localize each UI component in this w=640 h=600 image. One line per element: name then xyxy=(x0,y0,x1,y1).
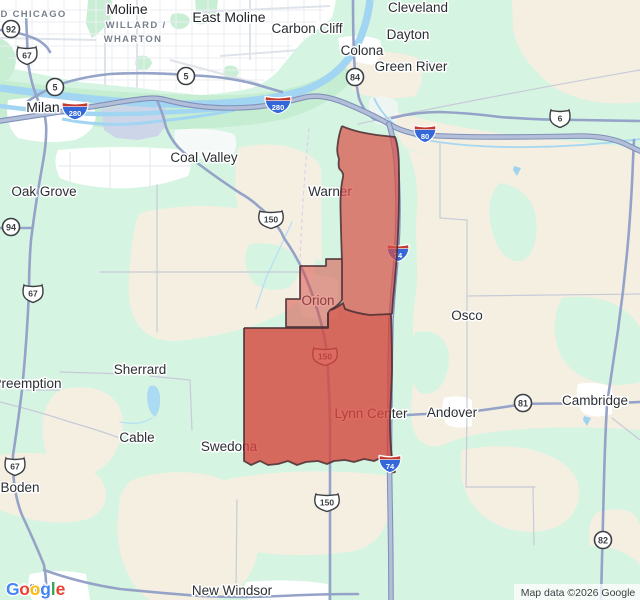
svg-text:Cleveland: Cleveland xyxy=(388,0,448,15)
svg-text:Carbon Cliff: Carbon Cliff xyxy=(271,21,342,36)
svg-text:81: 81 xyxy=(518,398,528,408)
svg-text:82: 82 xyxy=(598,535,608,545)
svg-text:80: 80 xyxy=(421,132,429,141)
svg-text:94: 94 xyxy=(6,222,16,232)
svg-text:o: o xyxy=(19,579,30,599)
svg-text:Cambridge: Cambridge xyxy=(562,393,628,408)
svg-text:67: 67 xyxy=(22,51,32,61)
svg-text:Coal Valley: Coal Valley xyxy=(170,150,238,165)
svg-text:Moline: Moline xyxy=(106,1,147,17)
svg-text:150: 150 xyxy=(264,215,278,225)
svg-text:G: G xyxy=(6,579,20,599)
svg-text:5: 5 xyxy=(183,71,188,81)
svg-text:150: 150 xyxy=(320,498,334,508)
svg-text:84: 84 xyxy=(350,72,360,82)
svg-text:Oak Grove: Oak Grove xyxy=(11,184,76,199)
svg-text:New Windsor: New Windsor xyxy=(192,583,273,598)
svg-text:g: g xyxy=(40,579,51,599)
svg-text:Green River: Green River xyxy=(375,59,448,74)
svg-text:Boden: Boden xyxy=(0,480,39,495)
svg-text:280: 280 xyxy=(272,103,285,112)
svg-text:Sherrard: Sherrard xyxy=(114,362,167,377)
svg-text:5: 5 xyxy=(52,82,57,92)
svg-text:Colona: Colona xyxy=(341,43,384,58)
svg-text:Osco: Osco xyxy=(451,308,483,323)
svg-text:Preemption: Preemption xyxy=(0,376,62,391)
svg-text:74: 74 xyxy=(386,462,395,471)
svg-text:6: 6 xyxy=(558,114,563,124)
svg-text:Andover: Andover xyxy=(427,405,478,420)
svg-text:67: 67 xyxy=(28,289,38,299)
svg-text:Milan: Milan xyxy=(26,99,59,115)
svg-text:67: 67 xyxy=(10,462,20,472)
svg-text:o: o xyxy=(30,579,41,599)
svg-text:Map data ©2026 Google: Map data ©2026 Google xyxy=(521,587,636,599)
svg-text:LD CHICAGO: LD CHICAGO xyxy=(0,9,67,20)
svg-text:WHARTON: WHARTON xyxy=(104,34,163,45)
svg-text:92: 92 xyxy=(6,24,16,34)
svg-text:e: e xyxy=(56,579,66,599)
svg-text:Dayton: Dayton xyxy=(387,27,430,42)
svg-text:280: 280 xyxy=(69,109,82,118)
svg-text:WILLARD /: WILLARD / xyxy=(106,20,167,31)
svg-text:Cable: Cable xyxy=(119,430,154,445)
svg-text:East Moline: East Moline xyxy=(192,9,265,25)
